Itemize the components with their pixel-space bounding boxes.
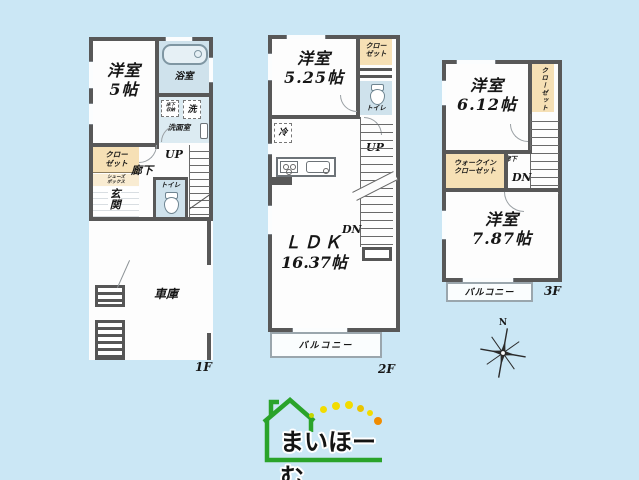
room-bedroom-3f-a-label: 洋室 6.12帖 — [446, 76, 528, 114]
washer-box: 洗 — [183, 100, 201, 119]
room-name: 洋室 — [446, 76, 528, 95]
wall — [268, 177, 292, 185]
room-size: 7.87帖 — [446, 229, 558, 248]
stairs-up-1f-label: UP — [165, 148, 183, 161]
room-size: 6.12帖 — [446, 95, 528, 114]
toilet-icon — [164, 197, 179, 214]
logo-dot — [374, 417, 382, 425]
kitchen-counter — [276, 157, 336, 177]
fridge-label: 冷 — [275, 128, 291, 139]
toilet-icon — [370, 89, 385, 105]
window — [89, 103, 93, 125]
faucet-icon — [323, 168, 329, 174]
window — [286, 35, 326, 39]
window — [268, 143, 272, 155]
bathtub-drain-icon — [194, 50, 202, 58]
room-toilet-2f: トイレ — [360, 81, 392, 115]
room-entrance-label: 玄関 — [108, 188, 121, 210]
floor-1-plan: 洋室 5帖 浴室 床下収納 洗 洗面室 クローゼット — [89, 37, 213, 377]
floorplan-canvas: 洋室 5帖 浴室 床下収納 洗 洗面室 クローゼット — [0, 0, 639, 480]
logo-dot — [320, 406, 327, 413]
room-name: 洋室 — [93, 61, 155, 80]
room-garage: 車庫 — [89, 221, 213, 360]
logo-dot — [309, 413, 314, 418]
wall — [268, 115, 360, 119]
sink-icon — [200, 123, 208, 139]
room-bedroom-3f-b-label: 洋室 7.87帖 — [446, 210, 558, 248]
closet-2f-label: クローゼット — [364, 42, 388, 59]
balcony-2f: バルコニー — [270, 332, 382, 358]
washer-label: 洗 — [184, 105, 200, 116]
closet-2f: クローゼット — [360, 39, 392, 65]
underfloor-storage-label: 床下収納 — [165, 103, 176, 114]
underfloor-storage-box: 床下収納 — [161, 100, 179, 117]
garage-guide-line — [117, 260, 130, 288]
compass: N — [478, 318, 528, 380]
window — [268, 205, 272, 235]
closet-1f-label: クローゼット — [104, 150, 129, 168]
kitchen-sink-icon — [306, 161, 330, 173]
window — [209, 57, 213, 83]
closet-3f: クローゼット — [532, 64, 554, 112]
room-bath-label: 浴室 — [159, 71, 209, 82]
stairs-storage — [362, 247, 392, 261]
walk-in-closet: ウォークインクローゼット — [446, 154, 504, 188]
window — [89, 61, 93, 89]
shoe-box-label: シューズボックス — [106, 175, 126, 186]
room-bath: 浴室 — [159, 41, 209, 93]
room-bedroom-2f-label: 洋室 5.25帖 — [272, 49, 356, 87]
logo-dot — [332, 402, 340, 410]
window — [442, 80, 446, 106]
garage-wall-stub — [207, 333, 211, 360]
window — [165, 37, 193, 41]
bathtub-icon — [162, 44, 208, 65]
window — [268, 53, 272, 81]
compass-rose-icon — [474, 323, 532, 383]
shelf-icon — [360, 68, 392, 78]
logo-text: まいほーむ — [280, 422, 395, 480]
logo-dot — [345, 401, 353, 409]
room-name: 洋室 — [446, 210, 558, 229]
room-toilet-1f-label: トイレ — [156, 182, 185, 190]
window — [442, 210, 446, 240]
logo: まいほーむ — [250, 392, 395, 470]
hallway-1f-label: 廊下 — [131, 164, 153, 177]
room-size: 5帖 — [93, 80, 155, 99]
floor1-label: 1F — [195, 360, 212, 374]
floor-2-plan: 洋室 5.25帖 クローゼット トイレ 冷 — [268, 35, 400, 379]
room-bedroom-1f-label: 洋室 5帖 — [93, 61, 155, 99]
room-name: 洋室 — [272, 49, 356, 68]
balcony-3f-label: バルコニー — [448, 288, 531, 299]
wall — [185, 177, 188, 221]
wall — [504, 154, 508, 192]
room-entrance: 玄関 — [93, 187, 139, 217]
garage-shutter-box — [95, 320, 125, 360]
fridge-box: 冷 — [274, 123, 292, 143]
garage-wall-stub — [207, 221, 211, 265]
garage-shutter-box — [95, 285, 125, 307]
logo-dot — [357, 405, 364, 412]
closet-3f-label: クローゼット — [539, 67, 547, 112]
balcony-3f: バルコニー — [446, 282, 533, 302]
room-name: ＬＤＫ — [268, 233, 360, 253]
room-toilet-2f-label: トイレ — [360, 105, 392, 113]
room-toilet-1f: トイレ — [156, 180, 185, 217]
room-garage-label: 車庫 — [119, 287, 213, 301]
room-size: 16.37帖 — [268, 253, 360, 272]
stove-icon — [280, 161, 298, 173]
walk-in-closet-label: ウォークインクローゼット — [452, 159, 498, 176]
floor-3-plan: 洋室 6.12帖 クローゼット 廊下 DN ウォークインクローゼット 洋室 7.… — [442, 60, 562, 320]
floor2-label: 2F — [378, 362, 395, 376]
room-size: 5.25帖 — [272, 68, 356, 87]
floor3-label: 3F — [544, 284, 561, 298]
balcony-2f-label: バルコニー — [272, 341, 380, 352]
stairs-down-3f-label: DN — [512, 171, 532, 184]
logo-dot — [367, 410, 373, 416]
burner-icon — [286, 169, 292, 175]
window — [456, 60, 496, 64]
room-ldk-label: ＬＤＫ 16.37帖 — [268, 233, 360, 273]
